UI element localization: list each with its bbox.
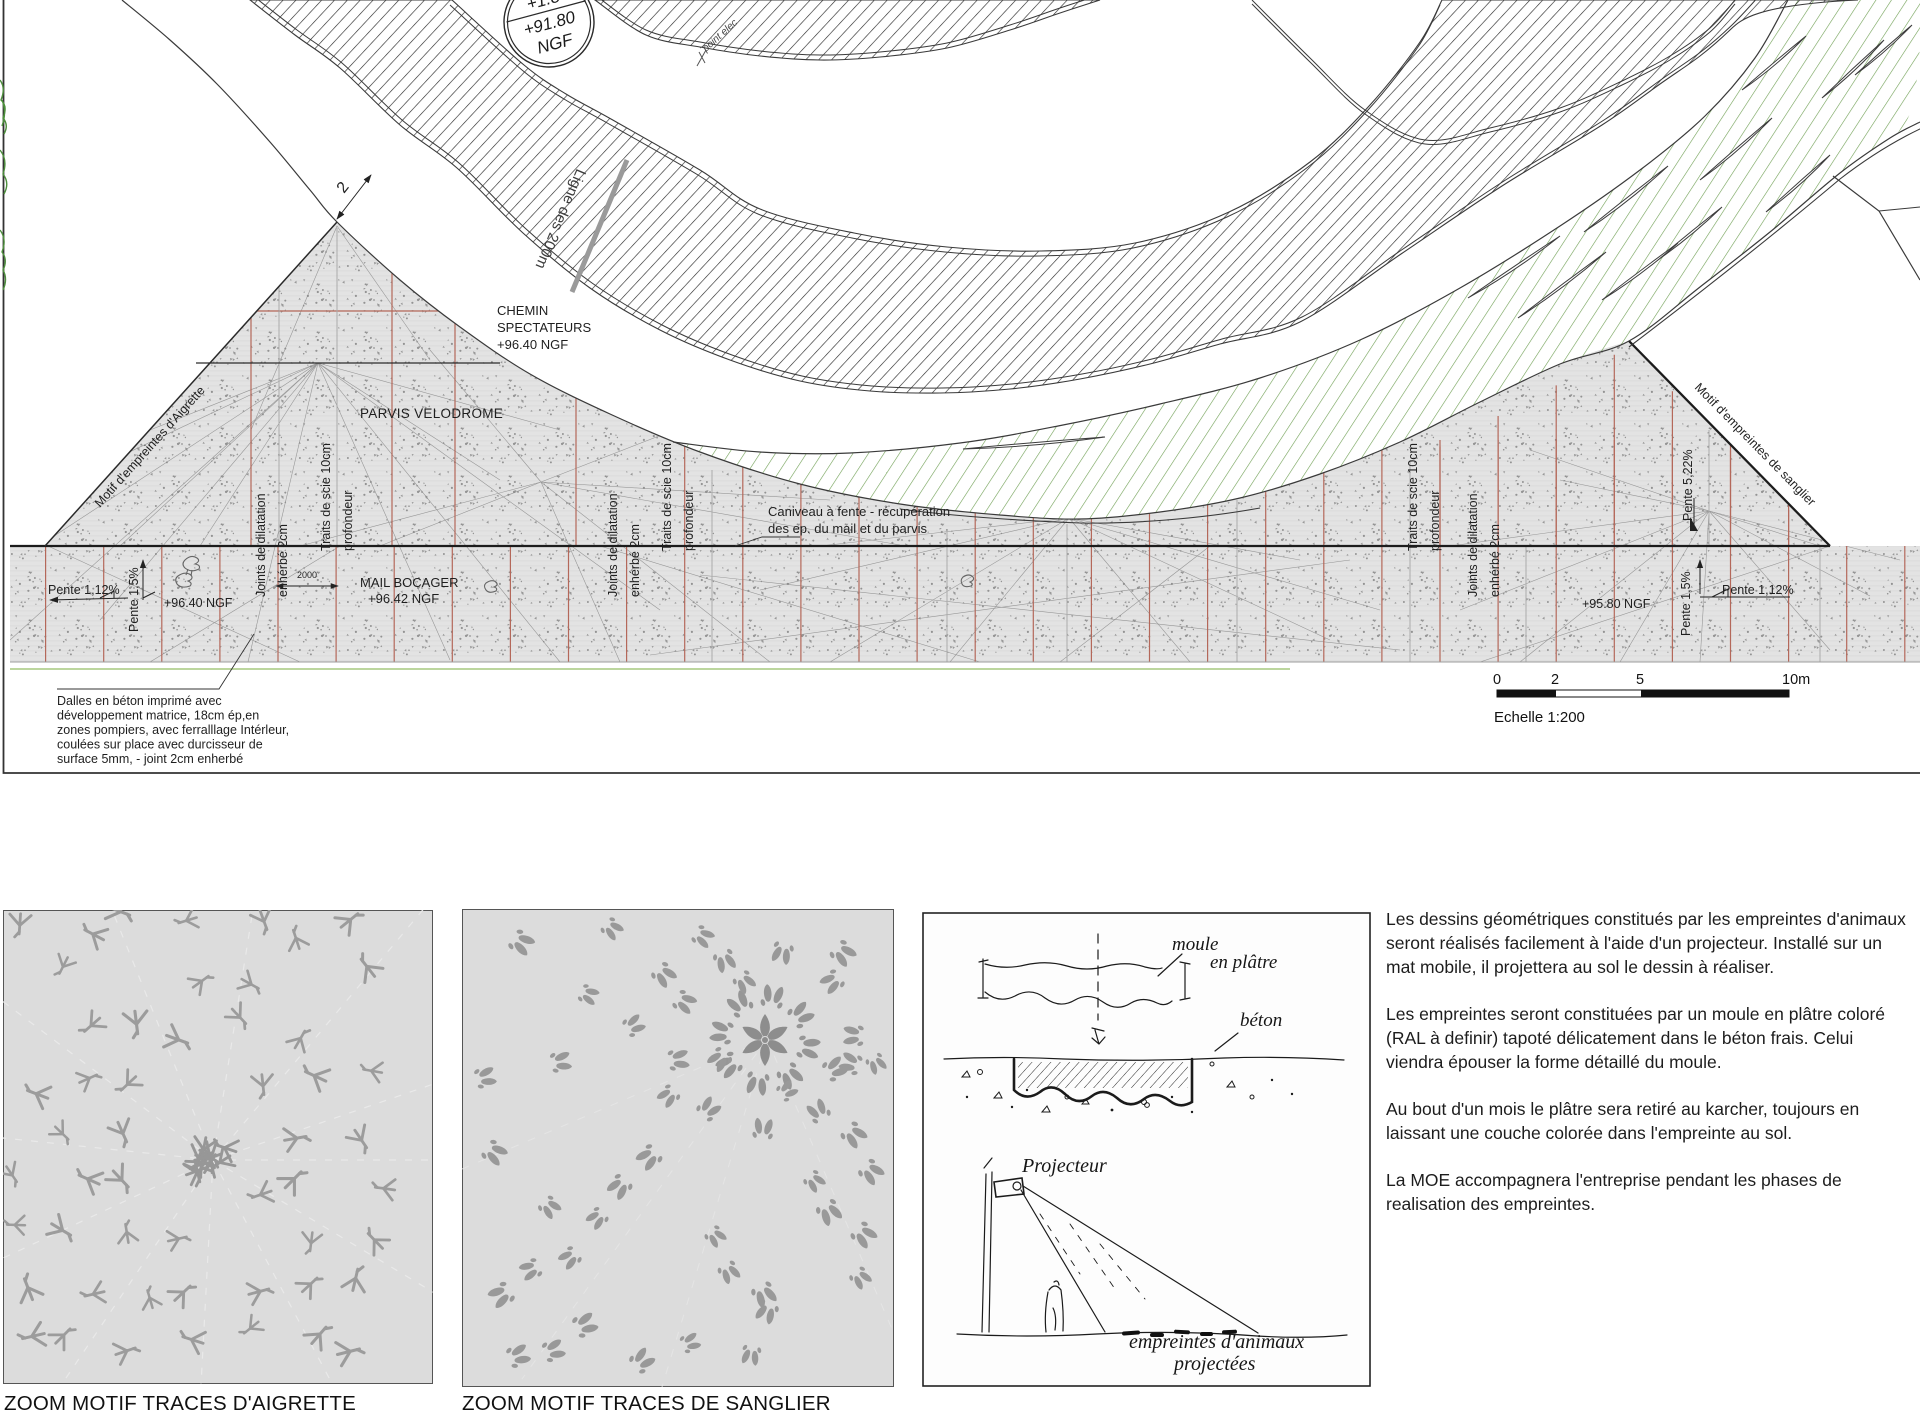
svg-text:développement matrice, 18cm ép: développement matrice, 18cm ép,en [57, 709, 259, 723]
svg-text:Dalles en béton imprimé avec: Dalles en béton imprimé avec [57, 694, 222, 708]
svg-text:Caniveau à fente - récupératio: Caniveau à fente - récupération [768, 504, 950, 519]
svg-text:surface 5mm, - joint 2cm enher: surface 5mm, - joint 2cm enherbé [57, 752, 243, 766]
svg-text:en plâtre: en plâtre [1210, 952, 1277, 973]
svg-text:Pente 1,5%: Pente 1,5% [1679, 571, 1693, 636]
svg-text:Traits de scie 10cm: Traits de scie 10cm [1406, 443, 1420, 551]
svg-text:0: 0 [1493, 672, 1501, 688]
svg-text:2: 2 [334, 179, 353, 197]
svg-text:Pente 1,12%: Pente 1,12% [1722, 583, 1794, 597]
svg-text:+96.42 NGF: +96.42 NGF [368, 591, 439, 606]
svg-text:+95.80 NGF: +95.80 NGF [1582, 597, 1651, 611]
svg-text:profondeur: profondeur [341, 491, 355, 551]
svg-text:enhérbé 2cm: enhérbé 2cm [628, 524, 642, 597]
svg-text:Joints de dilatation: Joints de dilatation [254, 493, 268, 597]
svg-text:projectées: projectées [1172, 1353, 1256, 1375]
svg-text:+96.40 NGF: +96.40 NGF [164, 596, 233, 610]
svg-text:Traits de scie 10cm: Traits de scie 10cm [319, 443, 333, 551]
svg-text:des ep. du mail et du parvis: des ep. du mail et du parvis [768, 521, 927, 536]
svg-text:Pente 5,22%: Pente 5,22% [1681, 449, 1695, 521]
svg-text:profondeur: profondeur [1428, 491, 1442, 551]
svg-text:coulées sur place avec durciss: coulées sur place avec durcisseur de [57, 738, 263, 752]
svg-text:CHEMIN: CHEMIN [497, 303, 548, 318]
svg-text:SPECTATEURS: SPECTATEURS [497, 320, 591, 335]
svg-text:Pente 1,5%: Pente 1,5% [127, 567, 141, 632]
svg-text:2: 2 [1551, 672, 1559, 688]
svg-text:Projecteur: Projecteur [1021, 1155, 1107, 1177]
svg-text:profondeur: profondeur [682, 491, 696, 551]
svg-text:empreintes d'animaux: empreintes d'animaux [1129, 1331, 1304, 1353]
svg-text:5: 5 [1636, 672, 1644, 688]
svg-text:Pente 1,12%: Pente 1,12% [48, 583, 120, 597]
svg-text:MAIL BOCAGER: MAIL BOCAGER [360, 575, 458, 590]
svg-text:10m: 10m [1782, 672, 1810, 688]
svg-text:enhérbé 2cm: enhérbé 2cm [1488, 524, 1502, 597]
svg-text:+96.40 NGF: +96.40 NGF [497, 337, 568, 352]
svg-text:zones pompiers, avec ferrallla: zones pompiers, avec ferralllage Intérle… [57, 723, 289, 737]
svg-text:Traits de scie 10cm: Traits de scie 10cm [660, 443, 674, 551]
svg-text:béton: béton [1240, 1010, 1282, 1031]
svg-text:Joints de dilatation: Joints de dilatation [606, 493, 620, 597]
svg-text:PARVIS VELODROME: PARVIS VELODROME [360, 406, 503, 421]
svg-text:Echelle 1:200: Echelle 1:200 [1494, 709, 1585, 726]
svg-text:2000: 2000 [297, 570, 317, 580]
svg-text:Joints de dilatation: Joints de dilatation [1466, 493, 1480, 597]
